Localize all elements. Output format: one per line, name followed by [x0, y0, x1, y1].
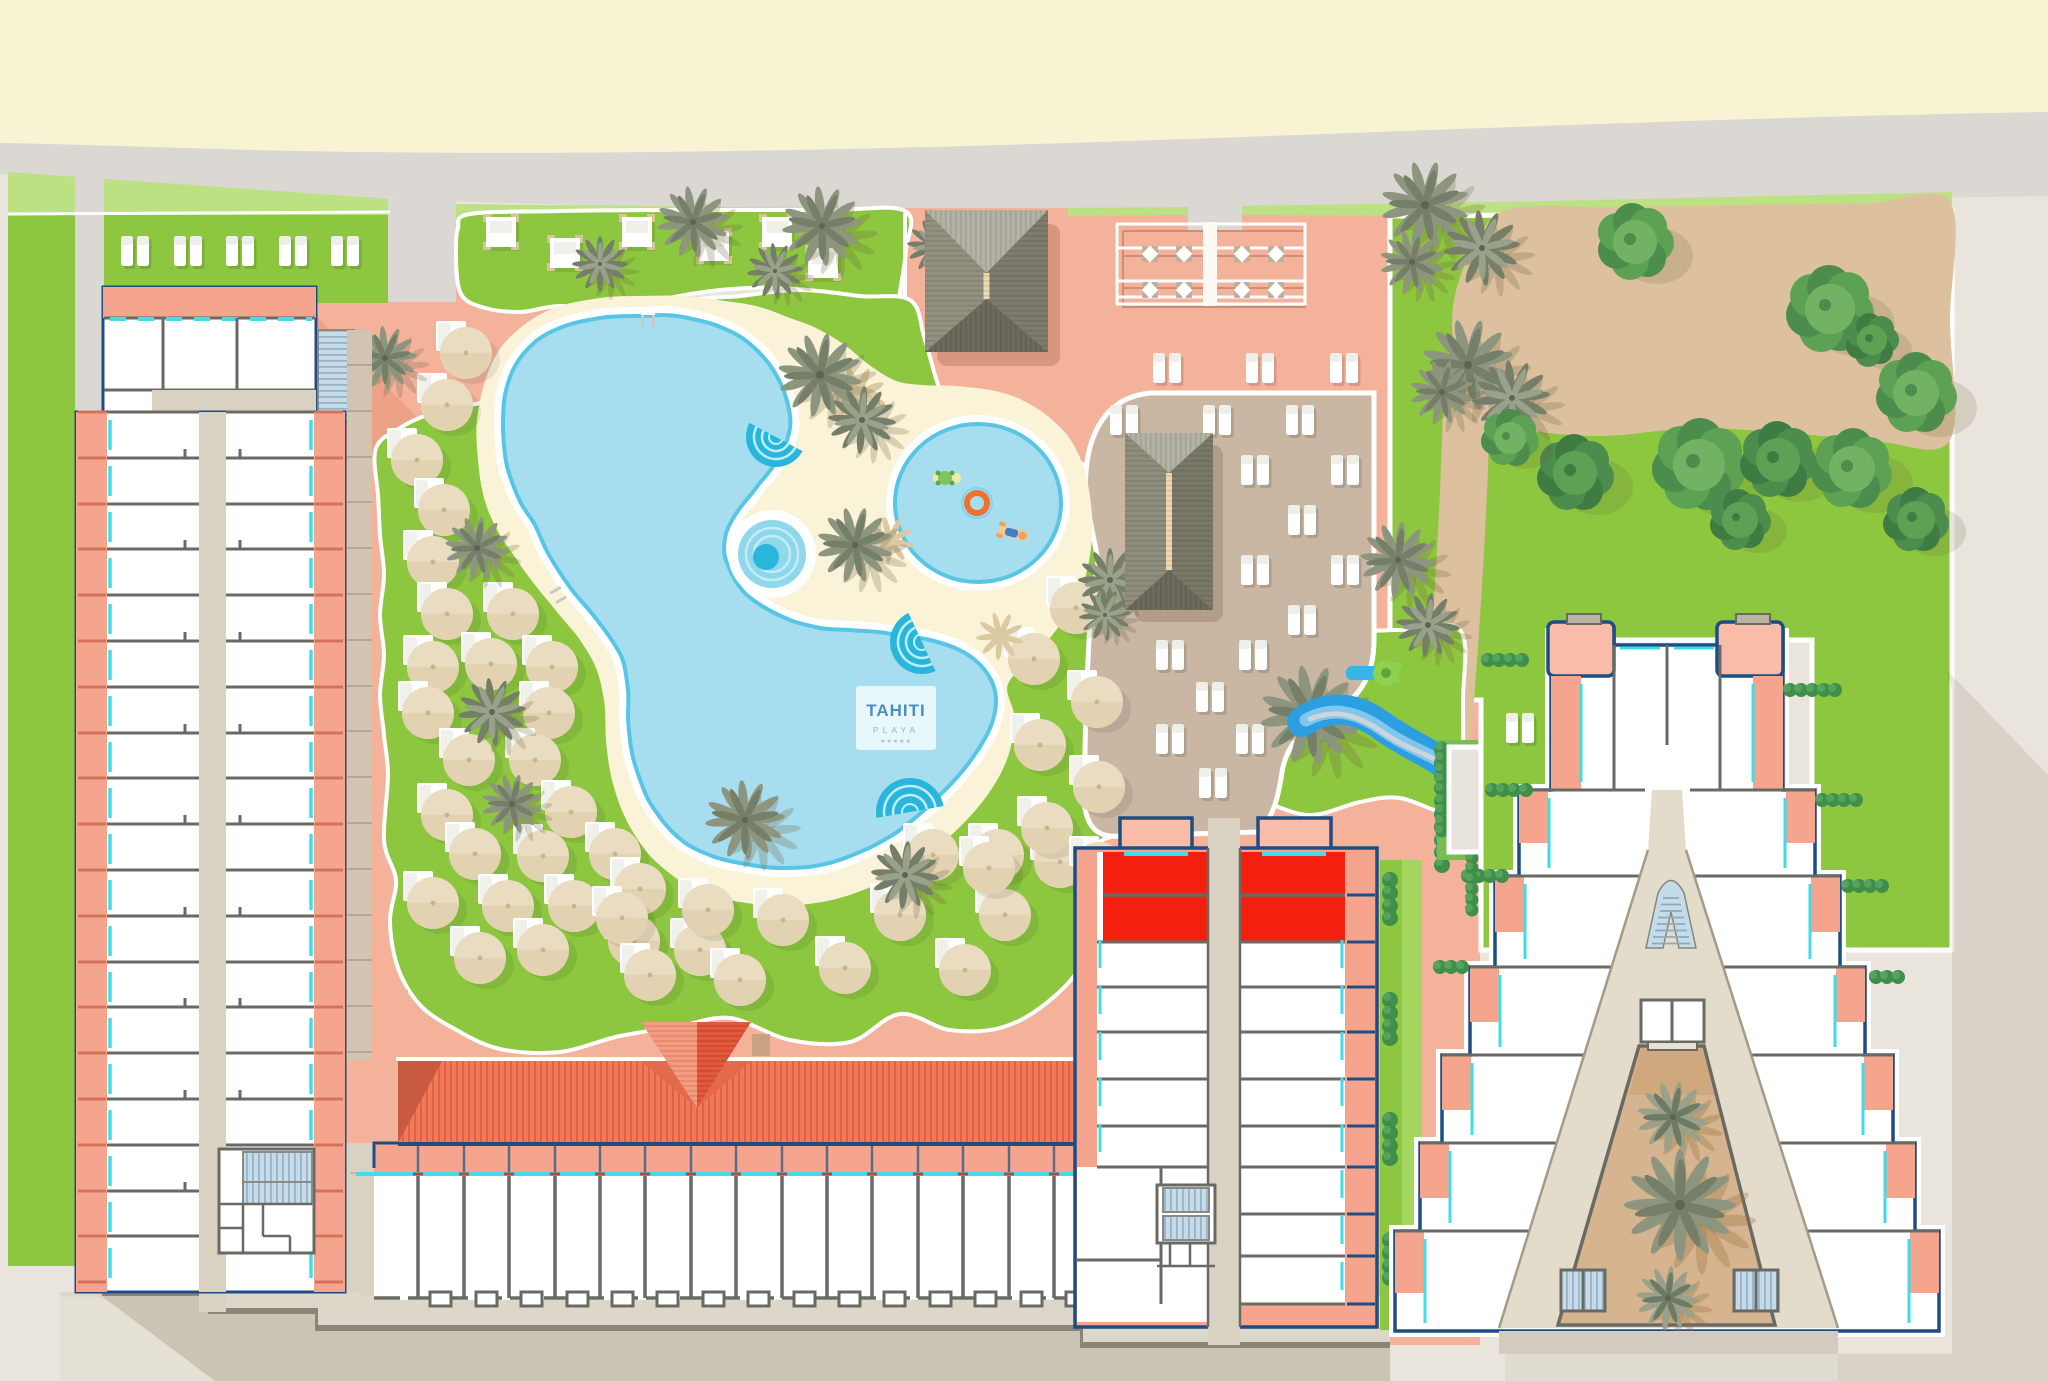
svg-text:★★★★★: ★★★★★	[880, 738, 912, 745]
svg-text:PLAYA: PLAYA	[873, 725, 919, 735]
svg-text:TAHITI: TAHITI	[866, 701, 926, 720]
